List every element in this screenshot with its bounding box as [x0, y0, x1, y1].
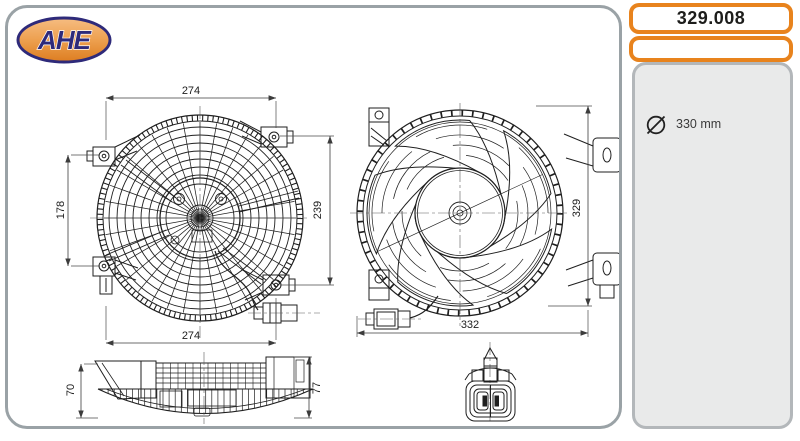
- front-view-drawing: [87, 106, 320, 338]
- diameter-spec-row: 330 mm: [643, 111, 721, 137]
- dim-front-right: 239: [312, 201, 324, 219]
- fan-blade: [373, 197, 473, 326]
- technical-drawing: 274 178 274 239 329 332: [8, 8, 619, 426]
- ahe-logo-icon: AHE: [14, 14, 114, 66]
- dim-rear-right: 329: [571, 199, 583, 217]
- dim-front-bottom: 274: [182, 330, 200, 342]
- fan-blade: [438, 229, 552, 297]
- logo-text: AHE: [37, 25, 92, 55]
- brand-logo: AHE: [14, 14, 114, 66]
- drawing-panel: 274 178 274 239 329 332: [5, 5, 622, 429]
- dim-side-right: 77: [311, 382, 323, 394]
- dim-rear-bottom: 332: [461, 319, 479, 331]
- diameter-icon: [643, 111, 669, 137]
- dim-front-top: 274: [182, 85, 200, 97]
- part-number: 329.008: [677, 8, 746, 29]
- side-view-drawing: [95, 352, 313, 424]
- secondary-box: [629, 36, 793, 62]
- dim-front-left: 178: [55, 201, 67, 219]
- dim-side-left: 70: [65, 384, 77, 396]
- wire-connector-rear: [358, 296, 438, 329]
- specs-panel: 330 mm: [632, 62, 793, 429]
- diameter-value: 330 mm: [676, 117, 721, 131]
- connector-detail-drawing: [465, 342, 516, 424]
- part-number-box: 329.008: [629, 3, 793, 34]
- fan-blade: [337, 132, 469, 254]
